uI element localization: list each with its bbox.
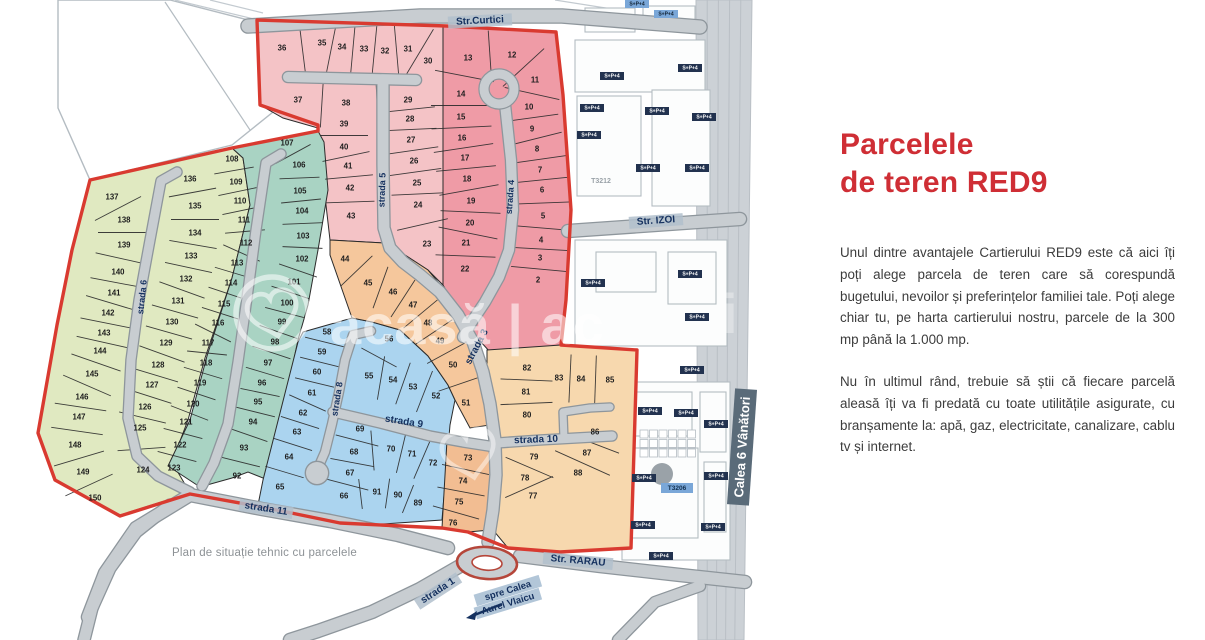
parcel-number: 135 [188,202,202,211]
parcel-number: 20 [466,219,475,228]
parcel-number: 117 [202,339,215,348]
parcel-number: 22 [461,265,470,274]
parcel-number: 36 [278,44,287,53]
building-height-chip: S+P+4 [636,475,652,481]
parcel-number: 115 [218,300,231,309]
parcel-number: 104 [295,207,309,216]
parcel-number: 93 [240,444,249,453]
parcel-number: 133 [184,252,198,261]
parcel-number: 79 [530,453,539,462]
parcel-number: 87 [583,449,592,458]
parcel-number: 121 [179,418,193,427]
strada-8-bulb [306,462,328,484]
page-title-line1: Parcelele [840,128,974,161]
panel-paragraph-2: Nu în ultimul rând, trebuie să știi că f… [840,371,1175,458]
parcel-number: 64 [285,453,294,462]
building-height-chip: S+P+4 [584,105,600,111]
parcel-number: 63 [293,428,302,437]
parcel-number: 81 [522,388,531,397]
parcel-number: 94 [249,418,258,427]
parcel-number: 12 [508,51,517,60]
parcel-number: 9 [530,125,535,134]
parcel-number: 10 [525,103,534,112]
parcel-number: 21 [462,239,471,248]
parcel-number: 116 [212,319,225,328]
parcel-number: 141 [107,289,121,298]
building-height-chip: S+P+4 [682,65,698,71]
parcel-number: 125 [133,424,147,433]
building-height-chip: S+P+4 [689,314,705,320]
parcel-number: 8 [535,145,540,154]
parcel-number: 134 [188,229,202,238]
info-panel: Parcelele de teren RED9 Unul dintre avan… [840,126,1175,458]
transformer-label: T3212 [591,178,611,185]
parcel-number: 52 [432,392,441,401]
direction-sign: spre CaleaAurel Vlaicu [466,575,542,620]
parcel-number: 73 [464,454,473,463]
parcel-number: 69 [356,425,365,434]
building-height-chip: S+P+4 [604,73,620,79]
building-height-chip: S+P+4 [649,108,665,114]
parcel-number: 144 [93,347,107,356]
parcel-number: 70 [387,445,396,454]
parcel-number: 51 [462,399,471,408]
road-sw [84,505,170,640]
site-plan-map: 3635343332313037382939404142432827262524… [0,0,790,640]
parcel-number: 16 [458,134,467,143]
parcel-number: 150 [88,494,102,503]
parcel-number: 61 [308,389,317,398]
parcel-number: 89 [414,499,423,508]
parcel-number: 146 [75,393,89,402]
parcel-number: 67 [346,469,355,478]
parcel-number: 97 [264,359,273,368]
parcel-number: 80 [523,411,532,420]
parcel-number: 28 [406,115,415,124]
parcel-number: 65 [276,483,285,492]
parcel-number: 25 [413,179,422,188]
strada-5-top [288,77,416,80]
parcel-number: 72 [429,459,438,468]
parcel-number: 137 [105,193,118,202]
parcel-number: 118 [200,359,213,368]
parcel-number: 139 [117,241,131,250]
parcel-number: 100 [280,299,294,308]
parcel-number: 114 [225,279,238,288]
parcel-number: 102 [295,255,309,264]
site-plan-svg: 3635343332313037382939404142432827262524… [0,0,790,640]
parcel-number: 30 [424,57,433,66]
building-height-chip: S+P+4 [705,524,721,530]
parcel-number: 138 [117,216,131,225]
parcel-number: 122 [173,441,187,450]
parcel-number: 120 [186,400,200,409]
parcel-number: 15 [457,113,466,122]
panel-paragraph-1: Unul dintre avantajele Cartierului RED9 … [840,242,1175,351]
parcel-number: 85 [606,376,615,385]
building-height-chip: S+P+4 [640,165,656,171]
parcel-number: 26 [410,157,419,166]
parcel-number: 50 [449,361,458,370]
parcel-number: 126 [138,403,152,412]
parcel-number: 14 [457,90,466,99]
parcel-number: 108 [225,155,239,164]
parcel-number: 5 [541,212,546,221]
parcel-number: 83 [555,374,564,383]
parcel-number: 109 [229,178,243,187]
parcel-number: 2 [536,276,541,285]
parcel-number: 40 [340,143,349,152]
parcel-number: 136 [183,175,197,184]
parcel-number: 132 [179,275,193,284]
parcel-number: 19 [467,197,476,206]
roundabout [456,545,518,581]
parcel-number: 90 [394,491,403,500]
parcel-number: 110 [234,197,247,206]
parcel-number: 43 [347,212,356,221]
parcel-number: 41 [344,162,353,171]
parcel-number: 106 [292,161,306,170]
building-height-chip: S+P+4 [696,114,712,120]
parcel-number: 31 [404,45,413,54]
parcel-number: 66 [340,492,349,501]
parcel-number: 76 [449,519,458,528]
building-height-chip: S+P+4 [684,367,700,373]
parcel-number: 84 [577,375,586,384]
parcel-number: 38 [342,99,351,108]
parcel-number: 3 [538,254,543,263]
parcel-number: 107 [280,139,293,148]
parcel-number: 54 [389,376,398,385]
watermark-text-tail: i [722,282,738,345]
parcel-number: 111 [238,216,251,225]
building-height-chip: S+P+4 [629,1,645,7]
parcel-number: 34 [338,43,347,52]
parcel-number: 148 [68,441,82,450]
parcel-number: 113 [231,259,244,268]
parcel-number: 82 [523,364,532,373]
building-height-chip: S+P+4 [708,473,724,479]
parcel-number: 119 [194,379,207,388]
parcel-number: 145 [85,370,99,379]
parcel-number: 27 [407,136,416,145]
parcel-number: 4 [539,236,544,245]
parcel-number: 78 [521,474,530,483]
parcel-number: 88 [574,469,583,478]
building-height-chip: S+P+4 [635,522,651,528]
parcel-number: 53 [409,383,418,392]
parcel-number: 75 [455,498,464,507]
parcel-number: 131 [171,297,185,306]
parcel-number: 33 [360,45,369,54]
parcel-number: 35 [318,39,327,48]
parcel-number: 103 [296,232,310,241]
parcel-number: 74 [459,477,468,486]
direction-arrow-icon [466,611,477,620]
parcel-number: 92 [233,472,242,481]
parcel-number: 112 [240,239,253,248]
page-title-line2: de teren RED9 [840,166,1048,199]
parcel-number: 142 [101,309,115,318]
parcel-number: 17 [461,154,470,163]
map-caption: Plan de situație tehnic cu parcelele [172,547,357,559]
building-height-chip: S+P+4 [653,553,669,559]
parcel-number: 7 [538,166,542,175]
road-label: strada 5 [376,173,387,208]
parcel-number: 147 [72,413,85,422]
building-height-chip: S+P+4 [689,165,705,171]
parcel-number: 45 [364,279,373,288]
parcel-number: 18 [463,175,472,184]
parcel-number: 77 [529,492,538,501]
parcel-number: 130 [165,318,179,327]
parcel-number: 149 [76,468,90,477]
parcel-number: 91 [373,488,382,497]
parcel-number: 123 [167,464,181,473]
building-height-chip: S+P+4 [642,408,658,414]
parcel-number: 11 [531,76,540,85]
parcel-number: 60 [313,368,322,377]
parcel-number: 128 [151,361,165,370]
parcel-number: 32 [381,47,390,56]
parcel-number: 13 [464,54,473,63]
building-height-chip: S+P+4 [585,280,601,286]
parcel-number: 95 [254,398,263,407]
parcel-number: 68 [350,448,359,457]
parcel-number: 37 [294,96,303,105]
parcel-number: 55 [365,372,374,381]
parcel-number: 105 [293,187,307,196]
parcel-number: 23 [423,240,432,249]
parcel-number: 42 [346,184,355,193]
building-height-chip: T3206 [668,485,687,492]
parcel-number: 6 [540,186,545,195]
building-height-chip: S+P+4 [708,421,724,427]
parcel-number: 24 [414,201,423,210]
parcel-number: 62 [299,409,308,418]
road-label: strada 10 [514,434,559,447]
parcel-number: 39 [340,120,349,129]
parcel-number: 29 [404,96,413,105]
watermark-text: acasă | ac [330,293,605,357]
parcel-number: 143 [97,329,111,338]
parcel-number: 127 [145,381,158,390]
parcel-number: 44 [341,255,350,264]
parcel-number: 71 [408,450,417,459]
parcel-number: 96 [258,379,267,388]
building-height-chip: S+P+4 [682,271,698,277]
parcel-number: 59 [318,348,327,357]
page-title: Parcelele de teren RED9 [840,126,1175,202]
parcel-number: 86 [591,428,600,437]
building-height-chip: S+P+4 [581,132,597,138]
parcel-number: 129 [159,339,173,348]
parcel-number: 140 [111,268,125,277]
parcel-number: 124 [136,466,150,475]
screenshot-root: 3635343332313037382939404142432827262524… [0,0,1205,640]
building-height-chip: S+P+4 [678,410,694,416]
building-height-chip: S+P+4 [658,11,674,17]
